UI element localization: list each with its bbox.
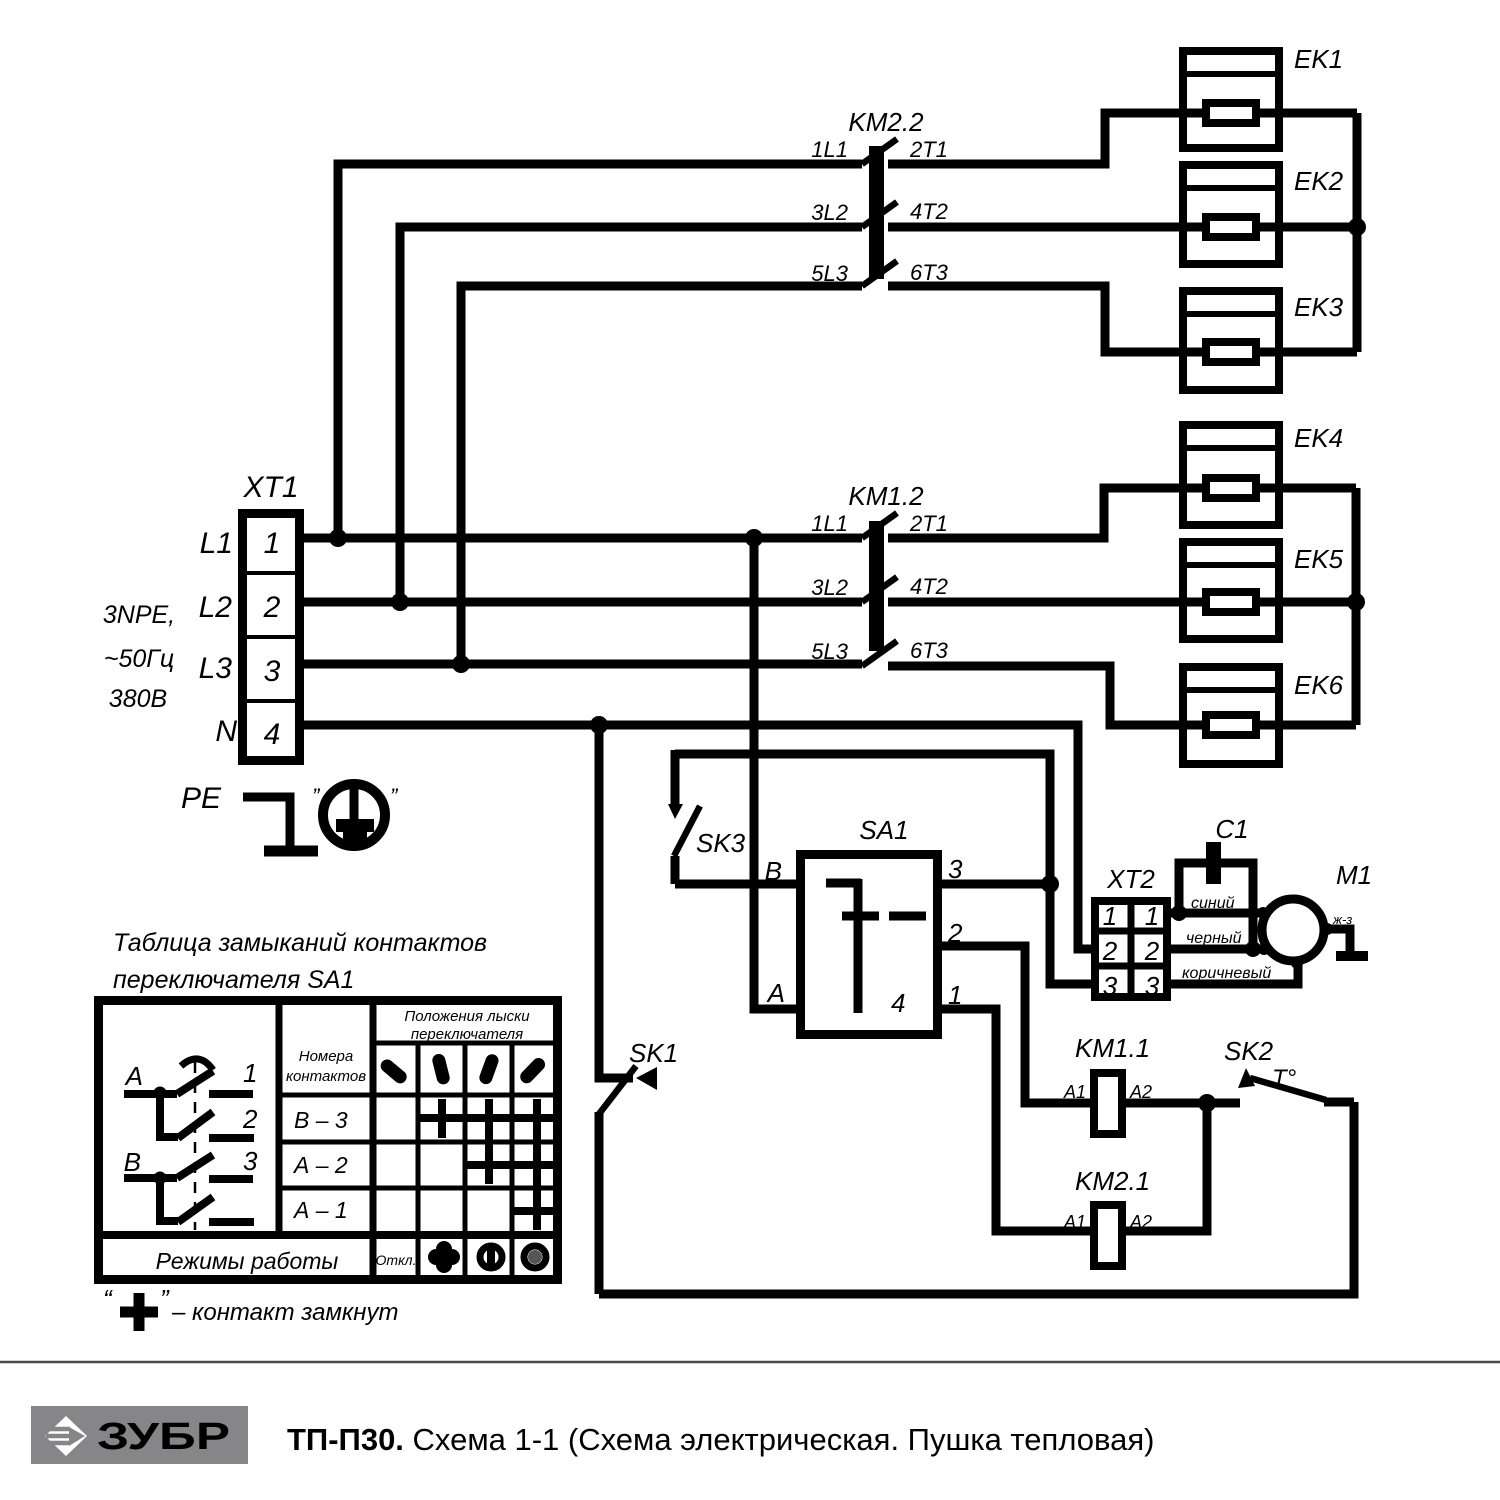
svg-text:ТП-П30. Схема 1-1 (Схема элект: ТП-П30. Схема 1-1 (Схема электрическая. … xyxy=(287,1422,1154,1457)
svg-text:4T2: 4T2 xyxy=(910,574,948,599)
svg-text:1L1: 1L1 xyxy=(811,137,848,162)
svg-text:Таблица замыканий контактов: Таблица замыканий контактов xyxy=(113,929,487,957)
svg-text:KM1.2: KM1.2 xyxy=(848,481,924,511)
svg-text:Положения лыски: Положения лыски xyxy=(404,1008,530,1025)
svg-text:L3: L3 xyxy=(199,652,233,685)
svg-text:4: 4 xyxy=(264,718,281,751)
svg-text:3: 3 xyxy=(264,655,281,688)
svg-text:2: 2 xyxy=(242,1104,258,1134)
svg-text:380В: 380В xyxy=(109,685,167,713)
svg-text:”: ” xyxy=(160,1284,170,1314)
svg-text:А – 2: А – 2 xyxy=(292,1152,348,1178)
svg-text:EK5: EK5 xyxy=(1294,544,1344,574)
svg-text:– контакт замкнут: – контакт замкнут xyxy=(171,1299,398,1326)
svg-text:XT1: XT1 xyxy=(242,471,298,504)
svg-text:Номера: Номера xyxy=(299,1048,354,1065)
svg-text:1: 1 xyxy=(243,1058,257,1088)
svg-text:SK3: SK3 xyxy=(696,828,746,858)
svg-text:1L1: 1L1 xyxy=(811,511,848,536)
svg-text:синий: синий xyxy=(1191,895,1235,912)
svg-text:2T1: 2T1 xyxy=(909,511,948,536)
svg-text:T°: T° xyxy=(1272,1065,1297,1092)
svg-text:XT2: XT2 xyxy=(1106,864,1155,894)
svg-text:PE: PE xyxy=(181,782,222,815)
svg-text:4: 4 xyxy=(891,988,905,1018)
svg-text:черный: черный xyxy=(1186,930,1242,947)
svg-text:EK6: EK6 xyxy=(1294,670,1344,700)
svg-text:KM2.1: KM2.1 xyxy=(1075,1166,1150,1196)
svg-text:KM1.1: KM1.1 xyxy=(1075,1033,1150,1063)
svg-text:A1: A1 xyxy=(1063,1082,1086,1102)
svg-text:A: A xyxy=(766,978,785,1008)
svg-text:А – 1: А – 1 xyxy=(292,1197,348,1223)
svg-text:EK1: EK1 xyxy=(1294,44,1343,74)
svg-text:3: 3 xyxy=(1103,971,1118,1001)
svg-text:4T2: 4T2 xyxy=(910,199,948,224)
svg-text:~50Гц: ~50Гц xyxy=(104,645,174,673)
svg-text:контактов: контактов xyxy=(286,1068,366,1085)
svg-text:2: 2 xyxy=(1102,936,1118,966)
svg-text:2: 2 xyxy=(1144,936,1160,966)
svg-text:B: B xyxy=(765,856,782,886)
svg-text:C1: C1 xyxy=(1215,814,1248,844)
svg-text:5L3: 5L3 xyxy=(811,261,848,286)
svg-text:коричневый: коричневый xyxy=(1182,965,1271,982)
svg-text:“: “ xyxy=(103,1284,113,1314)
svg-text:3L2: 3L2 xyxy=(811,200,848,225)
svg-text:Откл.: Откл. xyxy=(376,1252,417,1268)
svg-text:1: 1 xyxy=(1103,901,1117,931)
svg-text:5L3: 5L3 xyxy=(811,639,848,664)
svg-text:Режимы работы: Режимы работы xyxy=(156,1248,339,1274)
svg-text:SK2: SK2 xyxy=(1224,1036,1274,1066)
svg-text:A1: A1 xyxy=(1063,1212,1086,1232)
svg-text:переключателя SA1: переключателя SA1 xyxy=(113,966,354,994)
svg-text:2T1: 2T1 xyxy=(909,137,948,162)
svg-text:SA1: SA1 xyxy=(859,815,908,845)
svg-text:B: B xyxy=(124,1147,141,1177)
svg-text:N: N xyxy=(215,715,237,748)
svg-text:ж-з: ж-з xyxy=(1332,912,1352,927)
svg-text:6T3: 6T3 xyxy=(910,638,949,663)
svg-text:3: 3 xyxy=(243,1146,258,1176)
svg-text:SK1: SK1 xyxy=(629,1038,678,1068)
svg-text:переключателя: переключателя xyxy=(411,1026,523,1043)
svg-text:2: 2 xyxy=(263,591,281,624)
svg-text:3: 3 xyxy=(1145,971,1160,1001)
svg-text:M1: M1 xyxy=(1336,860,1372,890)
svg-text:1: 1 xyxy=(264,527,281,560)
svg-text:A: A xyxy=(124,1061,143,1091)
svg-text:1: 1 xyxy=(1145,901,1159,931)
svg-text:L1: L1 xyxy=(200,527,233,560)
svg-text:В – 3: В – 3 xyxy=(294,1107,348,1133)
svg-text:3L2: 3L2 xyxy=(811,575,848,600)
svg-text:6T3: 6T3 xyxy=(910,260,949,285)
svg-text:3NPE,: 3NPE, xyxy=(103,601,175,629)
svg-text:KM2.2: KM2.2 xyxy=(848,107,924,137)
svg-text:EK4: EK4 xyxy=(1294,423,1343,453)
svg-text:EK2: EK2 xyxy=(1294,166,1344,196)
svg-text:ЗУБР: ЗУБР xyxy=(97,1416,230,1458)
svg-text:L2: L2 xyxy=(199,591,233,624)
svg-text:EK3: EK3 xyxy=(1294,292,1344,322)
